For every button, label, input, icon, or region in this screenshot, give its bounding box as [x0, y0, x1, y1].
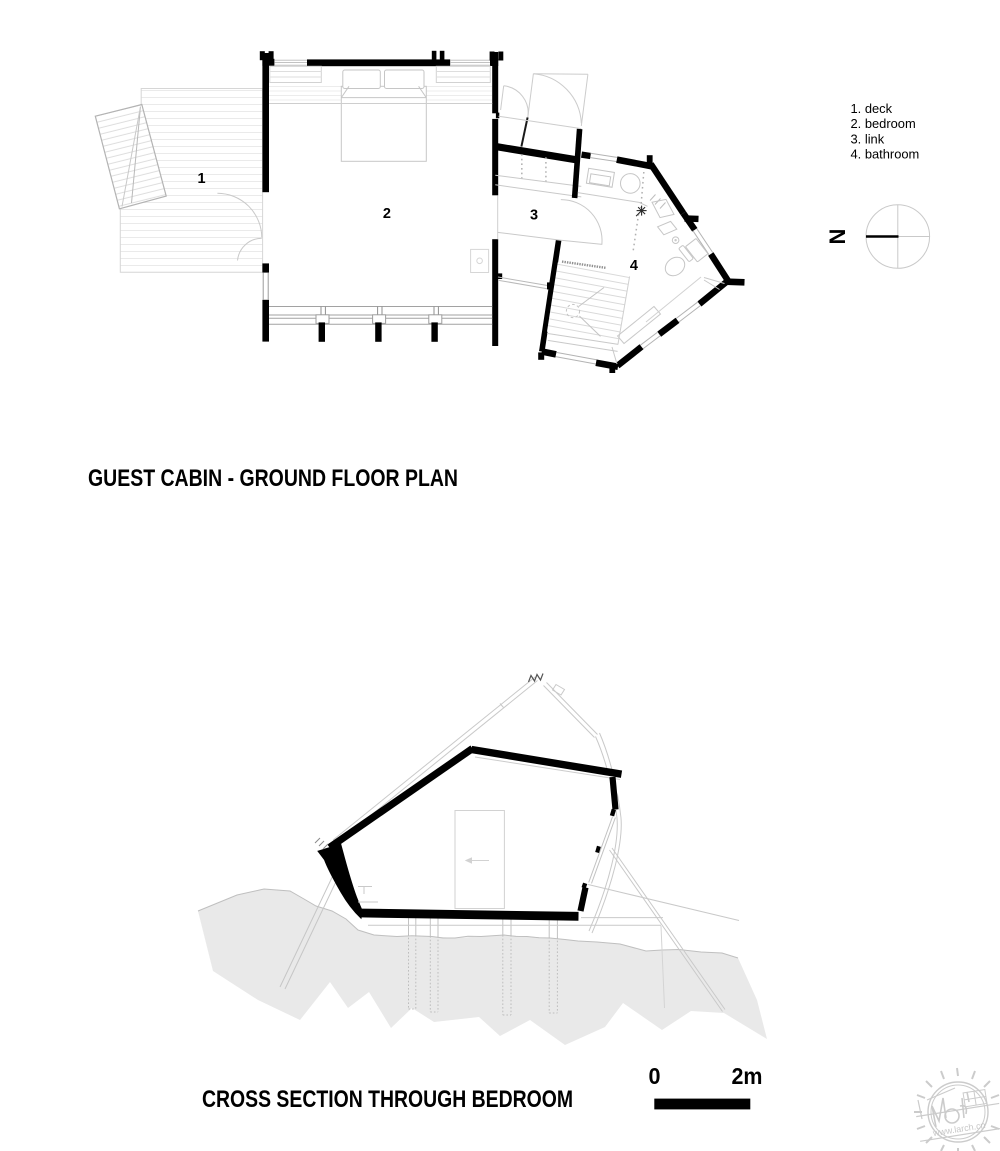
svg-text:1. deck: 1. deck — [851, 101, 893, 116]
svg-text:3: 3 — [530, 207, 538, 223]
svg-text:2m: 2m — [732, 1063, 763, 1089]
svg-text:0: 0 — [649, 1063, 661, 1089]
svg-text:CROSS SECTION THROUGH BEDROOM: CROSS SECTION THROUGH BEDROOM — [202, 1086, 573, 1113]
svg-text:4: 4 — [630, 258, 638, 274]
svg-text:3. link: 3. link — [851, 131, 885, 146]
svg-text:2. bedroom: 2. bedroom — [851, 116, 916, 131]
svg-text:2: 2 — [383, 206, 391, 222]
svg-text:1: 1 — [197, 171, 205, 187]
svg-text:4. bathroom: 4. bathroom — [851, 147, 920, 162]
svg-text:GUEST CABIN - GROUND FLOOR PLA: GUEST CABIN - GROUND FLOOR PLAN — [88, 465, 458, 492]
svg-text:N: N — [825, 229, 850, 245]
